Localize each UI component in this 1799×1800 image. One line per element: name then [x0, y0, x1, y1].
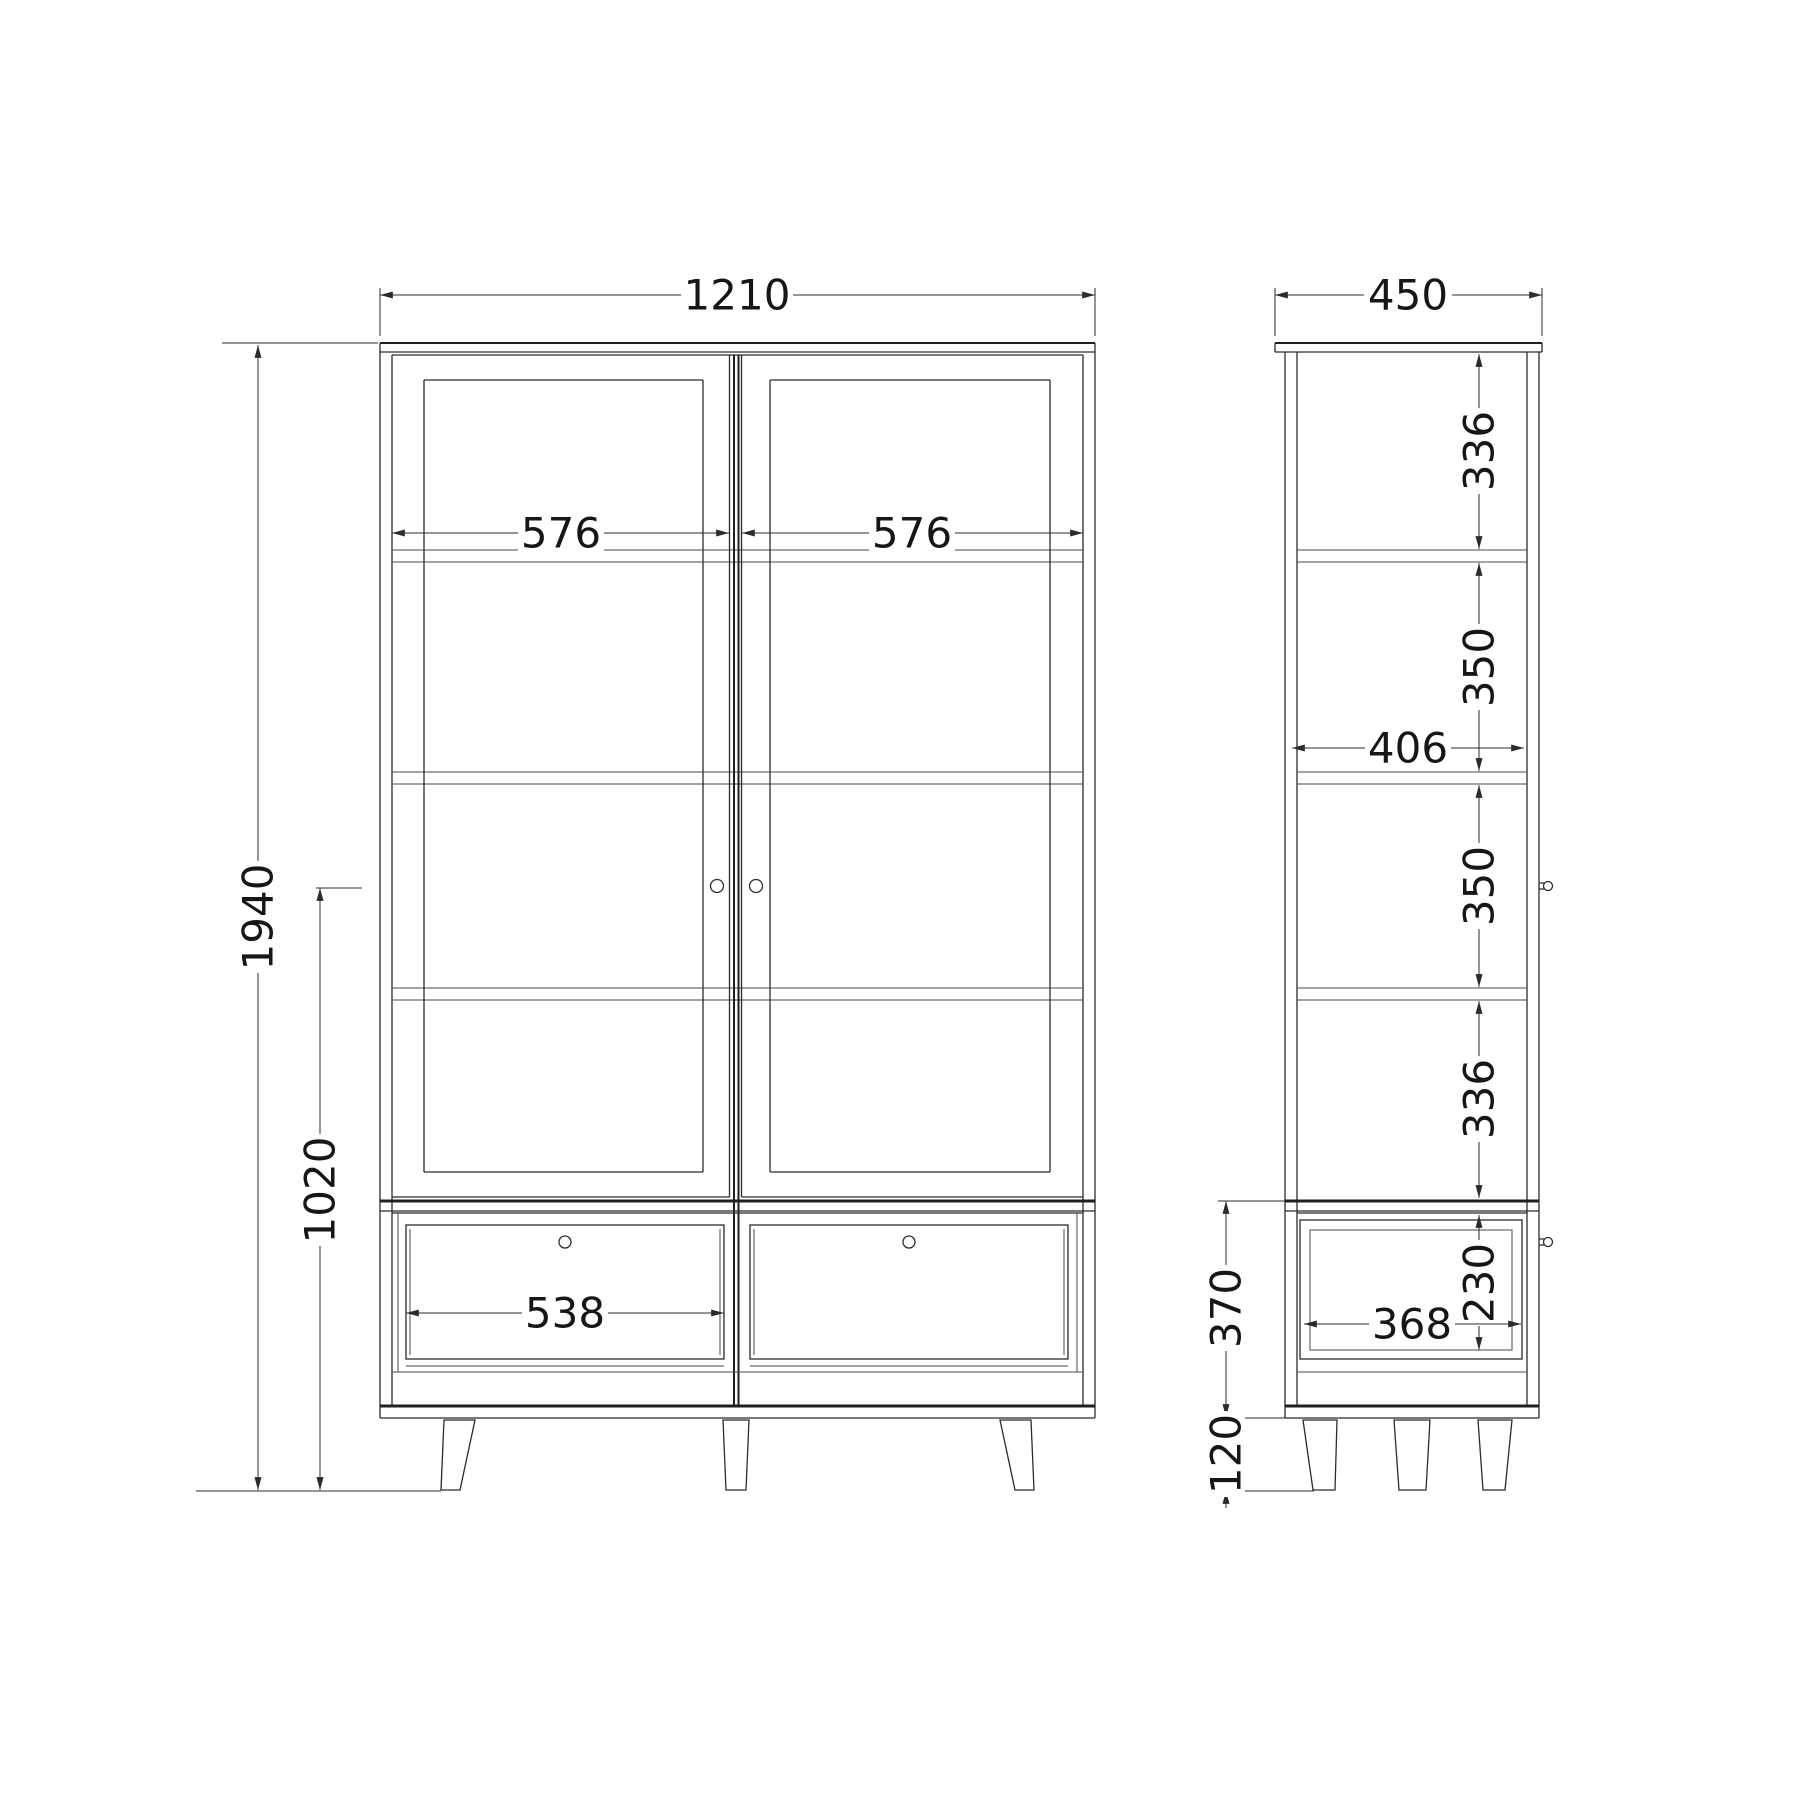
dim-front-overall-height: 1940: [234, 345, 283, 1490]
dim-label-front-height: 1940: [234, 864, 283, 971]
dim-drawer-front-width: 538: [406, 1289, 724, 1338]
dim-label-leg-height: 120: [1202, 1414, 1251, 1494]
dim-label-drawer-depth: 368: [1372, 1300, 1452, 1349]
side-back-leg: [1478, 1420, 1512, 1490]
side-shelf-2: [1297, 772, 1527, 784]
dim-front-overall-width: 1210: [380, 271, 1095, 320]
dim-drawer-opening-height: 230: [1455, 1215, 1504, 1350]
right-door-handle: [750, 880, 763, 893]
left-glass-door: [392, 355, 730, 1197]
front-middle-leg: [723, 1420, 749, 1490]
dim-label-top-section: 336: [1455, 411, 1504, 491]
front-legs: [441, 1420, 1034, 1490]
side-bottom-board: [1285, 1406, 1539, 1418]
front-bottom-board: [380, 1406, 1095, 1418]
side-shelf-3: [1297, 988, 1527, 1000]
side-middle-leg: [1394, 1420, 1430, 1490]
dim-label-lower-middle-section: 350: [1455, 846, 1504, 926]
dim-label-base-height: 370: [1202, 1268, 1251, 1348]
drawing-page: 1210 1940 1020 576 576 538: [0, 0, 1799, 1800]
left-door-handle: [711, 880, 724, 893]
right-drawer-handle: [903, 1236, 915, 1248]
front-right-leg: [1000, 1420, 1034, 1490]
side-divider: [1285, 1201, 1539, 1213]
front-left-wall: [380, 352, 392, 1418]
dim-handle-height: 1020: [296, 888, 345, 1490]
side-drawer-knob: [1539, 1238, 1553, 1247]
side-back-wall: [1285, 352, 1297, 1418]
front-right-wall: [1083, 352, 1095, 1418]
dim-label-front-width: 1210: [684, 271, 791, 320]
dim-label-upper-middle-section: 350: [1455, 627, 1504, 707]
right-drawer-front: [750, 1225, 1068, 1366]
dim-side-overall-depth: 450: [1275, 271, 1542, 320]
side-legs: [1303, 1420, 1512, 1490]
dim-label-right-door-width: 576: [872, 509, 952, 558]
front-view: [380, 343, 1095, 1490]
dim-side-shelf-chain: 336 350 350 336: [1455, 354, 1504, 1198]
right-glass-door: [742, 355, 1084, 1197]
side-shelf-1: [1297, 550, 1527, 562]
dim-label-drawer-opening-height: 230: [1455, 1243, 1504, 1323]
side-top-board: [1275, 343, 1542, 352]
dim-leg-height: 120: [1202, 1411, 1251, 1508]
side-front-wall: [1527, 352, 1539, 1418]
dim-base-height: 370: [1202, 1201, 1251, 1417]
dim-label-handle-height: 1020: [296, 1137, 345, 1244]
dim-label-left-door-width: 576: [521, 509, 601, 558]
left-drawer-handle: [559, 1236, 571, 1248]
side-door-knob: [1539, 882, 1553, 891]
dim-label-drawer-front-width: 538: [525, 1289, 605, 1338]
cabinet-technical-drawing: 1210 1940 1020 576 576 538: [0, 0, 1799, 1800]
front-left-leg: [441, 1420, 475, 1490]
door-meeting-stiles: [734, 355, 739, 1405]
dim-label-bottom-section: 336: [1455, 1059, 1504, 1139]
dim-label-side-depth: 450: [1368, 271, 1448, 320]
front-top-board: [380, 343, 1095, 352]
dim-interior-depth: 406: [1292, 724, 1524, 773]
side-front-leg: [1303, 1420, 1337, 1490]
dim-label-interior-depth: 406: [1368, 724, 1448, 773]
